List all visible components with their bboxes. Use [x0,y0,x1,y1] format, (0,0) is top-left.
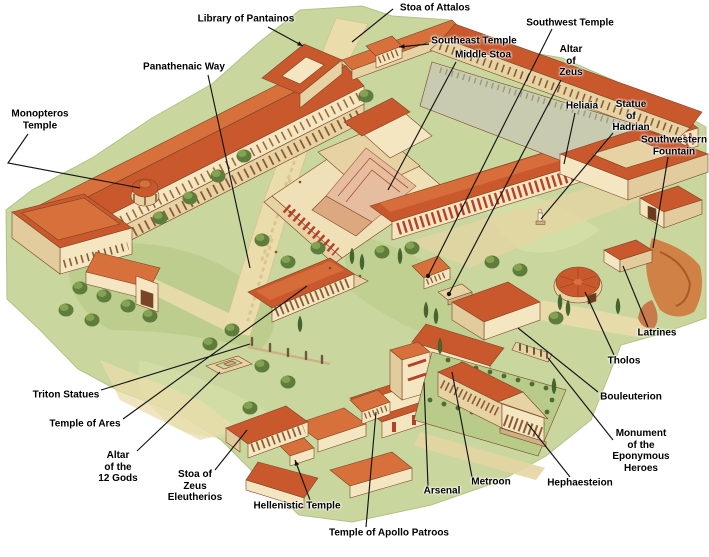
map-label-altar-of-the-12-gods: Altarof the12 Gods [98,450,137,485]
map-label-altar-of-zeus: AltarofZeus [559,44,582,79]
map-label-arsenal: Arsenal [424,485,461,497]
map-label-tholos: Tholos [608,355,641,367]
map-label-triton-statues: Triton Statues [33,389,100,401]
map-label-monument-of-the-eponymous-heroes: Monumentof theEponymousHeroes [612,428,669,474]
map-label-southwest-temple: Southwest Temple [526,17,614,29]
map-label-latrines: Latrines [638,327,677,339]
map-label-stoa-of-zeus-eleutherios: Stoa ofZeusEleutherios [168,469,222,504]
map-label-middle-stoa: Middle Stoa [455,49,511,61]
map-label-hellenistic-temple: Hellenistic Temple [253,500,340,512]
map-label-hephaesteion: Hephaesteion [547,477,613,489]
map-label-southeast-temple: Southeast Temple [431,35,516,47]
map-label-temple-of-apollo-patroos: Temple of Apollo Patroos [329,527,449,539]
map-label-stoa-of-attalos: Stoa of Attalos [400,2,470,14]
map-label-bouleuterion: Bouleuterion [600,391,662,403]
map-label-southwestern-fountain: SouthwesternFountain [641,135,707,158]
map-label-metroon: Metroon [471,476,510,488]
map-label-temple-of-ares: Temple of Ares [49,418,120,430]
map-label-heliaia: Heliaia [566,100,598,112]
map-label-monopteros-temple: MonopterosTemple [11,109,68,132]
agora-map: Library of PantainosStoa of AttalosSouth… [0,0,709,557]
map-label-panathenaic-way: Panathenaic Way [143,61,225,73]
labels-layer: Library of PantainosStoa of AttalosSouth… [0,0,709,557]
map-label-statue-of-hadrian: StatueofHadrian [612,99,649,134]
map-label-library-of-pantainos: Library of Pantainos [198,13,295,25]
